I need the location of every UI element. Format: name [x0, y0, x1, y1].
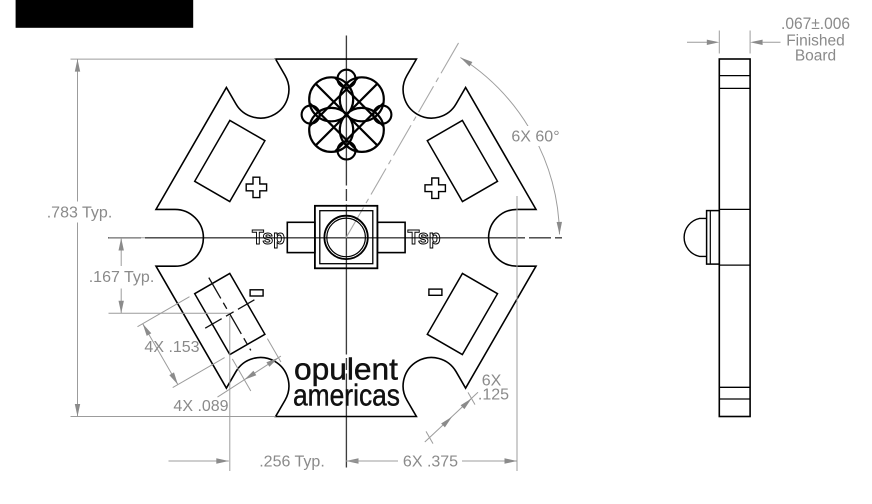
svg-text:4X .153: 4X .153 — [144, 339, 199, 356]
svg-text:.167 Typ.: .167 Typ. — [89, 269, 155, 286]
svg-text:Tsp: Tsp — [408, 226, 441, 249]
svg-text:.067±.006: .067±.006 — [781, 14, 850, 33]
svg-text:6X 60°: 6X 60° — [511, 129, 559, 146]
svg-text:Tsp: Tsp — [252, 226, 285, 249]
svg-text:.783 Typ.: .783 Typ. — [47, 205, 113, 222]
svg-text:6X .375: 6X .375 — [403, 454, 458, 471]
svg-text:4X .089: 4X .089 — [173, 398, 228, 415]
svg-text:.125: .125 — [478, 387, 509, 404]
svg-text:.256 Typ.: .256 Typ. — [259, 454, 325, 471]
svg-text:Board: Board — [795, 48, 836, 65]
svg-text:americas: americas — [293, 378, 400, 413]
